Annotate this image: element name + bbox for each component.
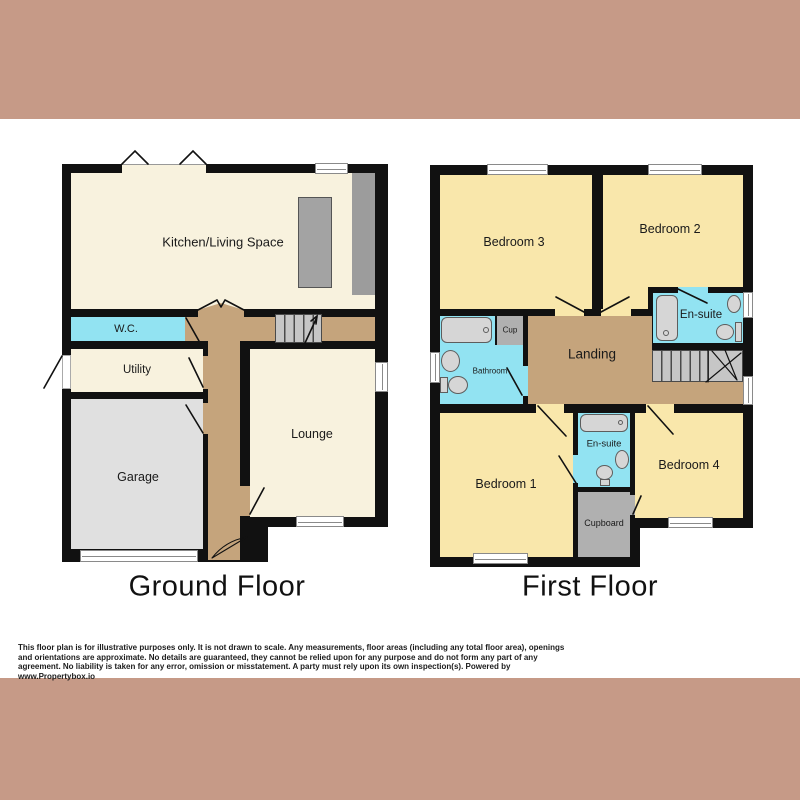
ensuite-bottom-door-gap [573, 455, 578, 483]
floor-plan-image: Kitchen/Living Space W.C. Utility Garage… [0, 0, 800, 800]
ensuite-bottom-sink-icon [615, 450, 629, 469]
room-label-kitchen: Kitchen/Living Space [162, 235, 283, 250]
room-label-bedroom2: Bedroom 2 [639, 222, 700, 236]
ensuite-top-toilet-icon [716, 324, 734, 340]
cupboard-door-gap [630, 495, 635, 515]
ensuite-top-sink-icon [727, 295, 741, 313]
bathroom-sink-icon [441, 350, 460, 372]
bottom-color-band [0, 678, 800, 800]
room-label-bedroom4: Bedroom 4 [658, 458, 719, 472]
room-label-bedroom1: Bedroom 1 [475, 477, 536, 491]
garage-hall-door-gap [203, 403, 208, 434]
kitchen-counter [352, 173, 375, 295]
lounge-bottom-window [296, 516, 344, 527]
ensuite-top-window [743, 292, 753, 318]
bathtub-drain-icon [483, 327, 489, 333]
ground-floor-title: Ground Floor [129, 571, 306, 604]
room-label-lounge: Lounge [291, 427, 333, 441]
kitchen-window [315, 163, 348, 174]
bathroom-window [430, 352, 440, 383]
garage-door [80, 550, 198, 562]
room-label-cup: Cup [503, 326, 518, 335]
lounge-side-window [375, 362, 388, 392]
bedroom1-window [473, 553, 528, 564]
room-label-landing: Landing [568, 347, 616, 362]
top-color-band [0, 0, 800, 119]
ensuite-top-door-gap [678, 287, 708, 293]
room-label-ensuite-bottom: En-suite [587, 439, 622, 450]
bathroom-door-gap [522, 366, 528, 396]
bedroom3-door-gap [555, 309, 584, 316]
room-label-bedroom3: Bedroom 3 [483, 235, 544, 249]
room-label-garage: Garage [117, 470, 159, 484]
room-label-ensuite-top: En-suite [680, 309, 722, 321]
utility-hall-door-gap [203, 356, 208, 389]
utility-exterior-door-gap [62, 355, 71, 389]
ensuite-bottom-drain-icon [618, 420, 623, 425]
stairs-first-winder [708, 350, 743, 382]
disclaimer-text: This floor plan is for illustrative purp… [18, 643, 574, 681]
kitchen-island [298, 197, 332, 288]
bedroom2-door-gap [601, 309, 631, 316]
bedroom1-door-gap [536, 404, 564, 413]
first-floor-title: First Floor [522, 571, 658, 604]
stairs-window [743, 376, 753, 405]
patio-door-right-icon [180, 151, 206, 164]
room-label-bathroom: Bathroom [473, 367, 508, 376]
ensuite-top-drain-icon [663, 330, 669, 336]
hallway-column [208, 317, 240, 560]
bedroom4-window [668, 517, 713, 528]
bedroom2-window [648, 164, 702, 175]
utility-exterior-door-icon [44, 356, 62, 388]
room-label-cupboard: Cupboard [584, 518, 624, 528]
lounge-door-gap [240, 486, 250, 516]
stairs-ground [275, 314, 322, 343]
kitchen-patio-opening [122, 164, 206, 175]
room-label-wc: W.C. [114, 323, 138, 335]
bedroom4-door-gap [646, 404, 674, 413]
ensuite-top-toilet-tank-icon [735, 322, 742, 342]
room-bedroom2-extension [603, 175, 648, 309]
ensuite-bottom-toilet-icon [596, 465, 613, 480]
patio-door-left-icon [122, 151, 148, 164]
bathroom-toilet-icon [448, 376, 468, 394]
ensuite-bottom-toilet-tank-icon [600, 479, 610, 486]
bedroom3-window [487, 164, 548, 175]
room-label-utility: Utility [123, 364, 151, 376]
bathroom-toilet-tank-icon [440, 377, 448, 393]
stairs-first-treads [652, 350, 709, 382]
